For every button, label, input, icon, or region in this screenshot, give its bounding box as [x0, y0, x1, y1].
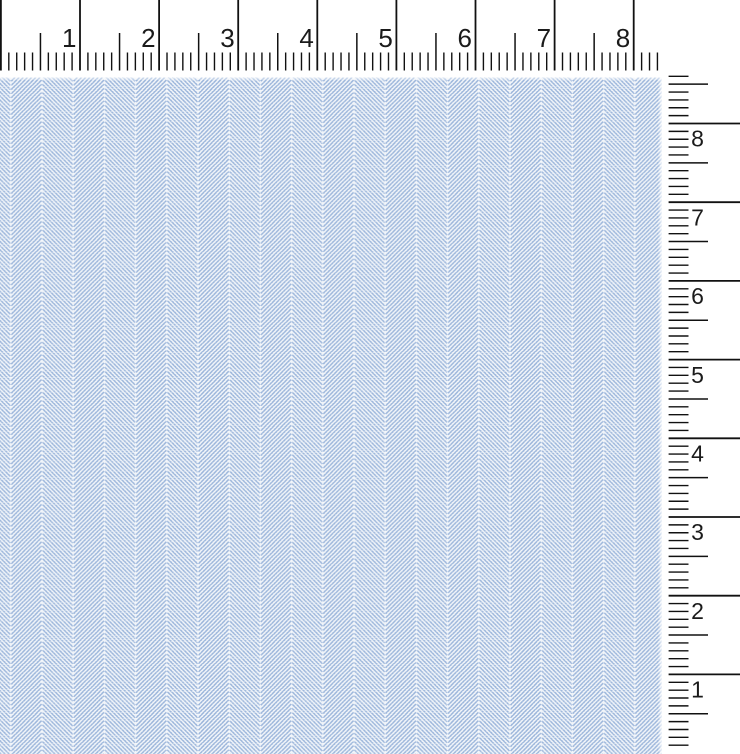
- svg-text:1: 1: [62, 23, 76, 53]
- svg-text:5: 5: [378, 23, 392, 53]
- svg-text:7: 7: [691, 204, 704, 230]
- svg-text:3: 3: [691, 519, 704, 545]
- svg-text:5: 5: [691, 362, 704, 388]
- svg-text:1: 1: [691, 677, 704, 703]
- svg-text:8: 8: [616, 23, 630, 53]
- svg-text:2: 2: [691, 598, 704, 624]
- svg-text:4: 4: [691, 441, 704, 467]
- svg-text:2: 2: [141, 23, 155, 53]
- svg-text:3: 3: [220, 23, 234, 53]
- svg-text:6: 6: [691, 283, 704, 309]
- svg-text:4: 4: [299, 23, 313, 53]
- svg-text:7: 7: [537, 23, 551, 53]
- svg-text:8: 8: [691, 126, 704, 152]
- svg-text:6: 6: [458, 23, 472, 53]
